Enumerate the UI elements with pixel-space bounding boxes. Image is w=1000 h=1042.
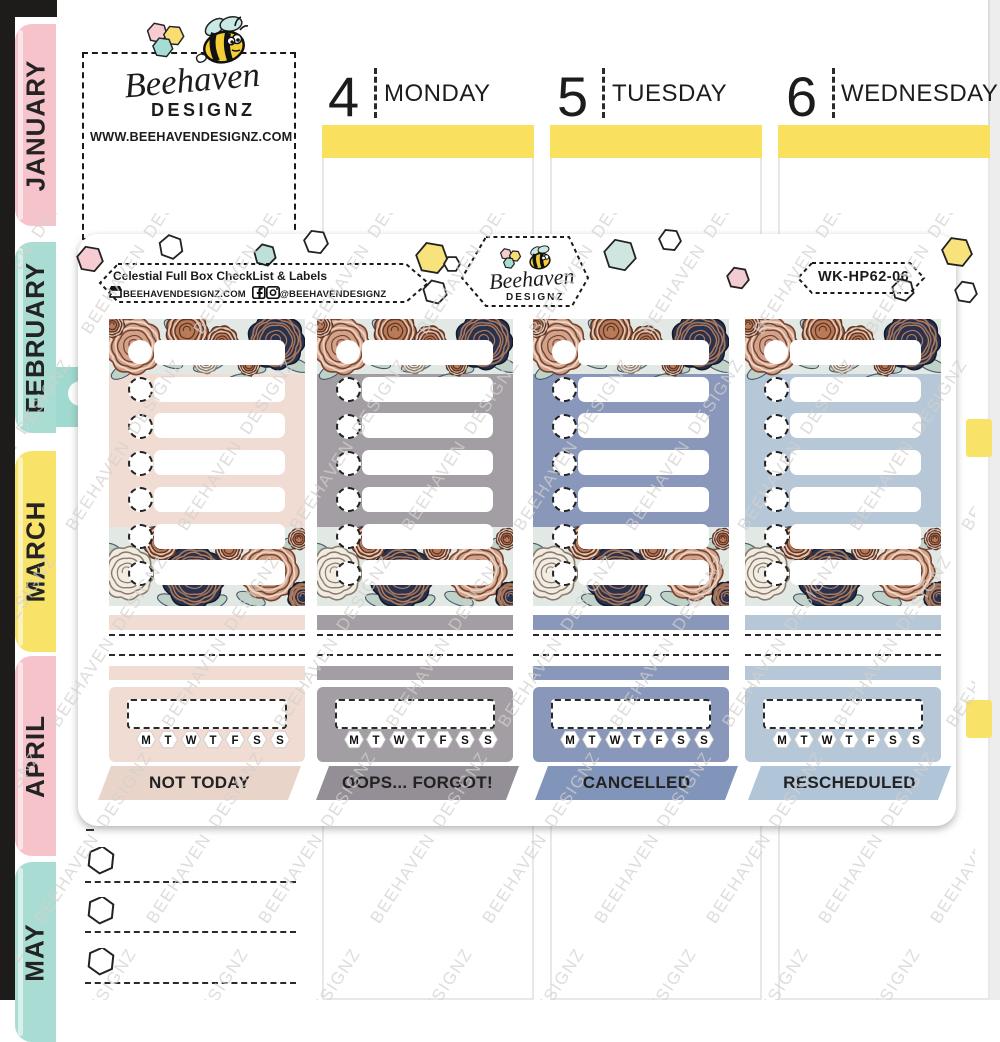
svg-text:M: M [565,735,575,747]
svg-text:M: M [141,735,151,747]
svg-text:S: S [253,735,261,747]
svg-text:S: S [276,735,284,747]
svg-text:W: W [822,735,833,747]
svg-text:S: S [677,735,685,747]
svg-text:M: M [777,735,787,747]
svg-text:T: T [164,735,171,747]
svg-text:S: S [484,735,492,747]
svg-text:F: F [655,735,662,747]
svg-text:S: S [461,735,469,747]
svg-text:T: T [417,735,424,747]
svg-text:T: T [209,735,216,747]
svg-text:T: T [800,735,807,747]
svg-text:F: F [867,735,874,747]
svg-text:M: M [349,735,359,747]
svg-text:W: W [186,735,197,747]
svg-text:T: T [372,735,379,747]
svg-text:S: S [889,735,897,747]
svg-text:T: T [588,735,595,747]
svg-text:S: S [912,735,920,747]
svg-text:W: W [610,735,621,747]
svg-text:W: W [394,735,405,747]
svg-text:S: S [700,735,708,747]
svg-text:F: F [231,735,238,747]
svg-text:T: T [633,735,640,747]
svg-text:F: F [439,735,446,747]
svg-text:T: T [845,735,852,747]
